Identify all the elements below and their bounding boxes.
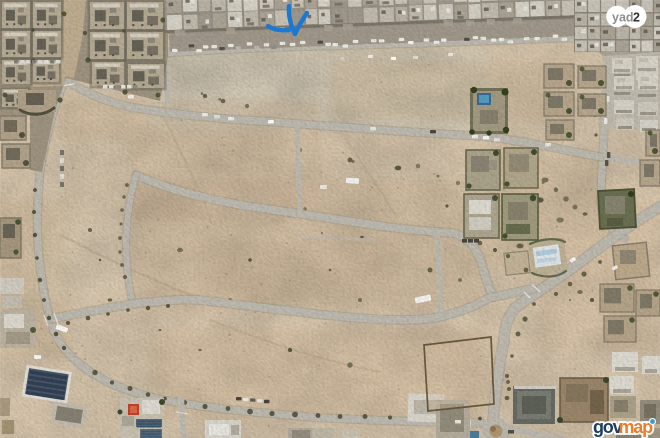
svg-text:yad: yad — [612, 11, 634, 25]
svg-text:2: 2 — [633, 11, 640, 25]
svg-text:map: map — [619, 417, 654, 437]
